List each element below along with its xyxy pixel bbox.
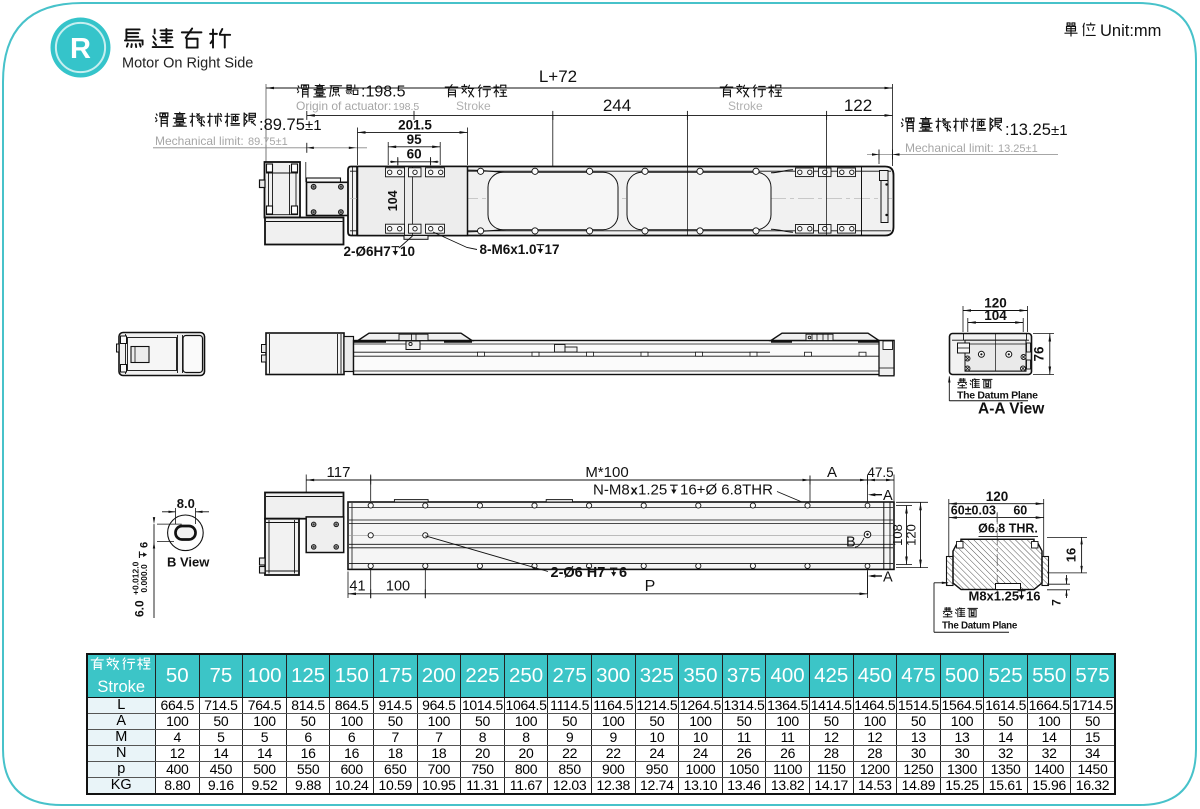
svg-text:244: 244 (603, 96, 631, 115)
svg-text:89.75±1: 89.75±1 (248, 136, 288, 148)
svg-text:±1: ±1 (1051, 122, 1068, 139)
svg-text:0.000.0: 0.000.0 (139, 564, 149, 595)
svg-text:Motor On Right Side: Motor On Right Side (122, 56, 253, 72)
svg-text:N-M8: N-M8 (593, 482, 630, 499)
svg-text:The Datum Plane: The Datum Plane (942, 621, 1018, 632)
svg-text:Mechanical limit:: Mechanical limit: (905, 141, 994, 155)
svg-text:Stroke: Stroke (728, 99, 763, 113)
svg-text:2-Ø6H7: 2-Ø6H7 (344, 244, 391, 259)
svg-text:R: R (70, 33, 91, 65)
svg-text::89.75: :89.75 (259, 116, 305, 134)
svg-text:13.25±1: 13.25±1 (998, 143, 1038, 155)
svg-text:P: P (645, 578, 656, 595)
svg-text::13.25: :13.25 (1005, 121, 1051, 139)
svg-text:120: 120 (904, 524, 919, 546)
svg-text:Origin of actuator:: Origin of actuator: (296, 99, 391, 113)
svg-text::198.5: :198.5 (361, 84, 406, 101)
svg-text:6: 6 (139, 542, 151, 548)
svg-text:8-M6x1.0: 8-M6x1.0 (480, 242, 537, 257)
svg-text:Unit:mm: Unit:mm (1100, 22, 1161, 40)
svg-text:117: 117 (327, 464, 351, 481)
svg-text:16: 16 (1026, 589, 1040, 604)
svg-text:16: 16 (1064, 548, 1079, 562)
svg-text:8.0: 8.0 (177, 496, 195, 511)
svg-text:2-Ø6 H7: 2-Ø6 H7 (551, 565, 606, 581)
svg-text:60: 60 (407, 147, 422, 162)
svg-text:M*100: M*100 (585, 464, 628, 481)
svg-text:A: A (883, 488, 893, 504)
svg-text:L+72: L+72 (539, 67, 577, 86)
svg-text:198.5: 198.5 (393, 101, 419, 113)
svg-text:Stroke: Stroke (456, 99, 491, 113)
svg-text:A: A (883, 570, 893, 586)
svg-text:±1: ±1 (305, 117, 322, 134)
svg-text:10: 10 (400, 244, 415, 259)
svg-text:17: 17 (545, 242, 560, 257)
svg-text:120: 120 (986, 489, 1009, 504)
svg-text:A-A View: A-A View (978, 401, 1045, 418)
svg-text:16+Ø 6.8THR: 16+Ø 6.8THR (680, 482, 773, 499)
svg-text:6: 6 (619, 565, 627, 581)
svg-text:201.5: 201.5 (398, 117, 432, 132)
svg-text:B: B (846, 535, 856, 551)
svg-text:A: A (827, 464, 837, 481)
svg-text:60: 60 (1013, 504, 1027, 518)
svg-text:M8x1.25: M8x1.25 (969, 589, 1020, 604)
svg-text:76: 76 (1032, 346, 1047, 362)
svg-text:6.0: 6.0 (133, 600, 147, 617)
svg-text:Ø6.8 THR.: Ø6.8 THR. (978, 522, 1038, 536)
svg-text:41: 41 (349, 579, 365, 595)
svg-text:B View: B View (167, 555, 210, 570)
svg-text:Mechanical limit:: Mechanical limit: (155, 134, 244, 148)
svg-text:7: 7 (1050, 599, 1064, 606)
svg-text:60±0.03: 60±0.03 (951, 504, 996, 518)
svg-text:104: 104 (984, 308, 1007, 323)
svg-text:104: 104 (386, 190, 400, 211)
svg-text:47.5: 47.5 (867, 465, 893, 480)
svg-text:122: 122 (844, 96, 872, 115)
svg-text:1.25: 1.25 (638, 482, 667, 499)
svg-text:95: 95 (407, 132, 423, 147)
svg-text:100: 100 (386, 579, 410, 595)
